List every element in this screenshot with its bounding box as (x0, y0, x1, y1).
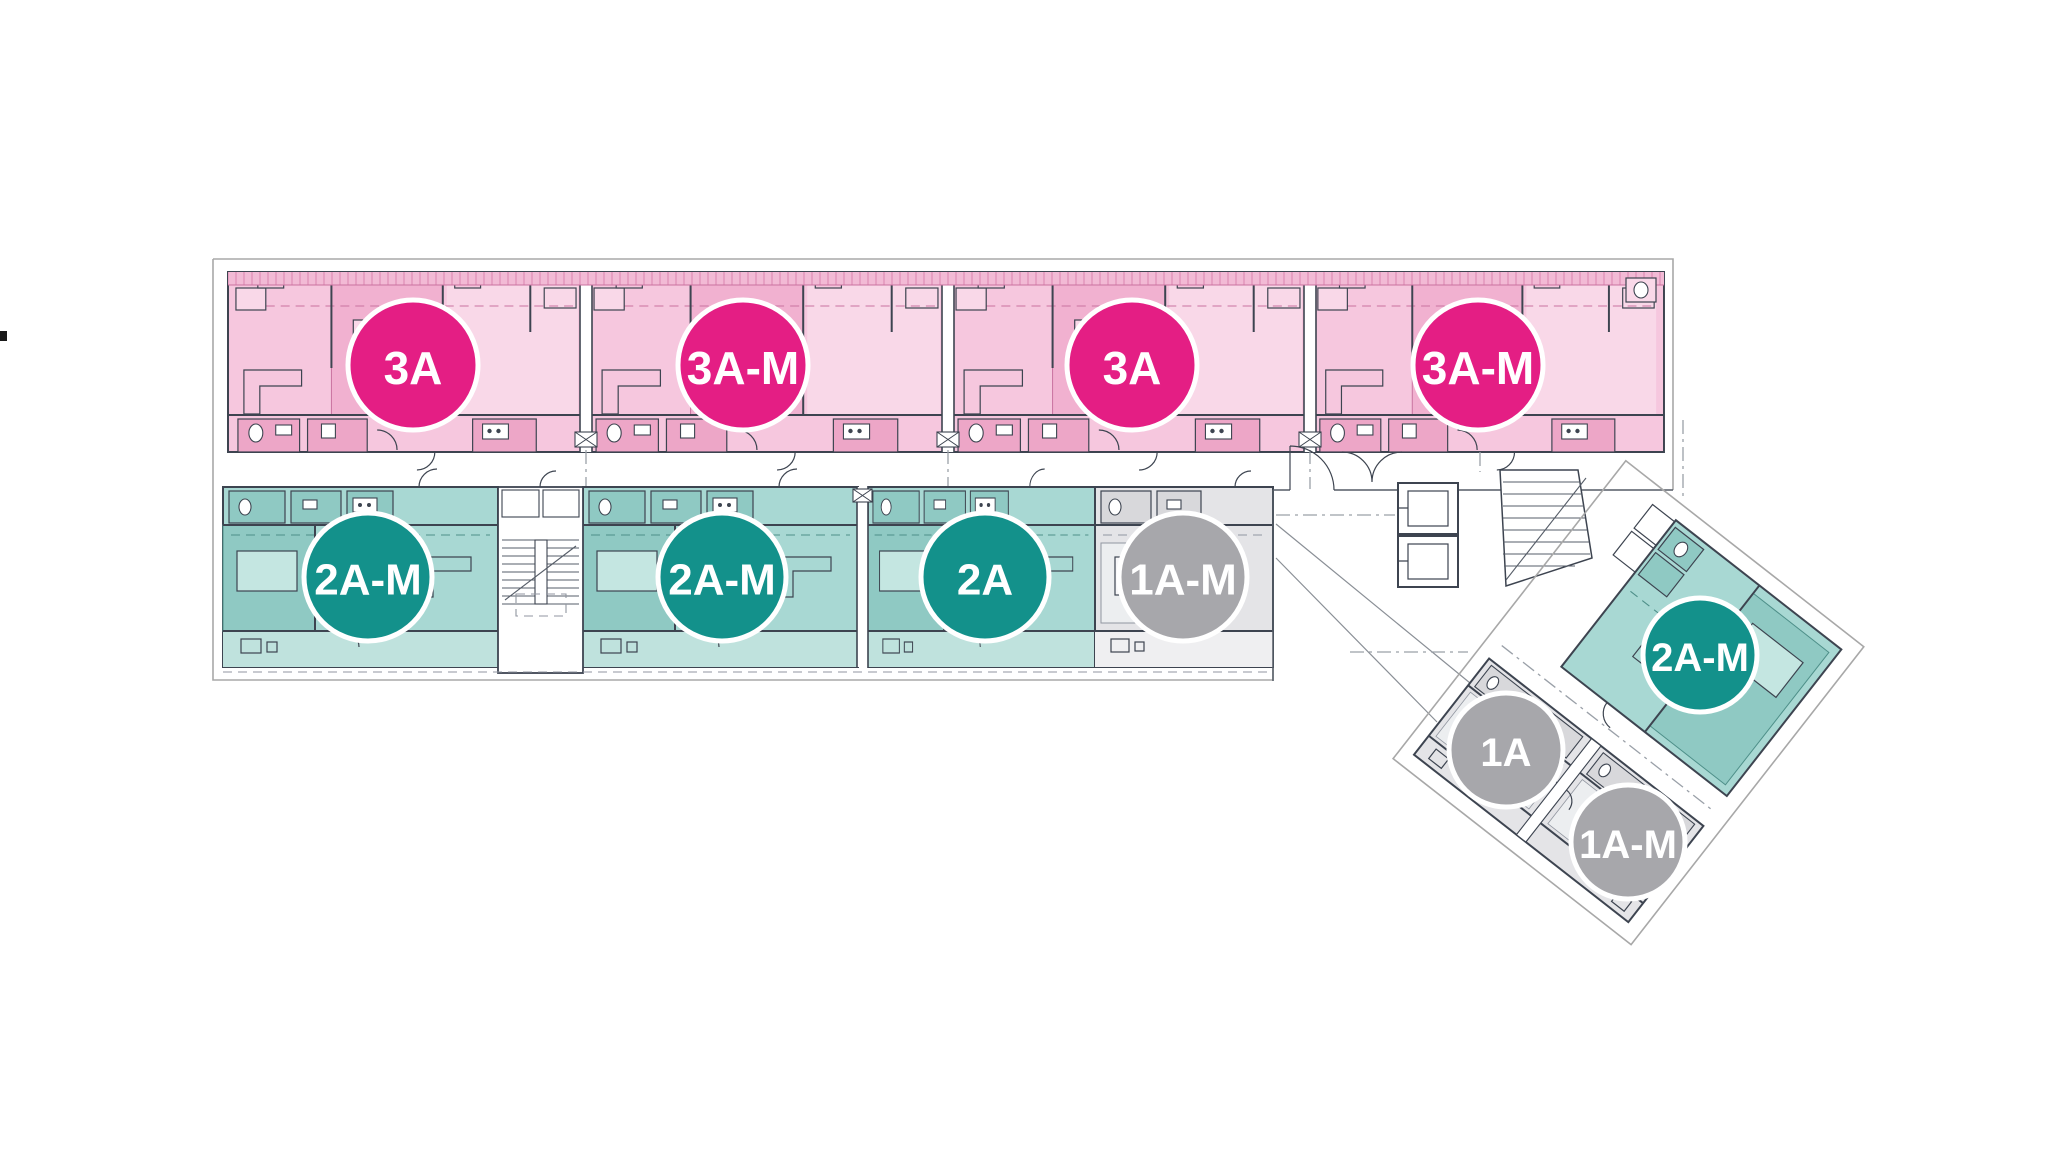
stairwell-core (498, 471, 583, 673)
svg-text:1A-M: 1A-M (1579, 823, 1677, 867)
unit-badge-3am-2[interactable]: 3A-M (1413, 300, 1543, 430)
floorplan-canvas: 3A 3A-M 3A 3A-M 2A-M 2A-M 2A 1A-M (0, 0, 2048, 1168)
unit-badge-2am-3[interactable]: 2A-M (1643, 598, 1757, 712)
svg-text:3A: 3A (1103, 342, 1162, 394)
svg-text:3A: 3A (384, 342, 443, 394)
svg-text:1A: 1A (1480, 731, 1531, 775)
unit-badge-2a[interactable]: 2A (921, 513, 1049, 641)
unit-badge-1am-1[interactable]: 1A-M (1119, 513, 1247, 641)
unit-badge-1a[interactable]: 1A (1449, 693, 1563, 807)
stairwell-right (1500, 470, 1592, 586)
unit-badge-1am-2[interactable]: 1A-M (1571, 785, 1685, 899)
double-door-arcs (1342, 452, 1402, 482)
svg-text:3A-M: 3A-M (1422, 342, 1534, 394)
svg-text:2A-M: 2A-M (314, 556, 422, 605)
central-corridor (586, 450, 1310, 489)
svg-text:2A-M: 2A-M (668, 556, 776, 605)
svg-text:3A-M: 3A-M (687, 342, 799, 394)
unit-badge-3am-1[interactable]: 3A-M (678, 300, 808, 430)
unit-badge-2am-2[interactable]: 2A-M (658, 513, 786, 641)
svg-text:1A-M: 1A-M (1129, 556, 1237, 605)
svg-text:2A-M: 2A-M (1651, 636, 1749, 680)
svg-text:2A: 2A (957, 556, 1013, 605)
elevator-core (1398, 483, 1458, 587)
unit-badge-3a-2[interactable]: 3A (1067, 300, 1197, 430)
floorplan-page: 3A 3A-M 3A 3A-M 2A-M 2A-M 2A 1A-M (0, 0, 2048, 1168)
railing-ticks (228, 272, 1664, 285)
unit-badge-2am-1[interactable]: 2A-M (304, 513, 432, 641)
edge-mark (0, 331, 7, 341)
unit-badge-3a-1[interactable]: 3A (348, 300, 478, 430)
